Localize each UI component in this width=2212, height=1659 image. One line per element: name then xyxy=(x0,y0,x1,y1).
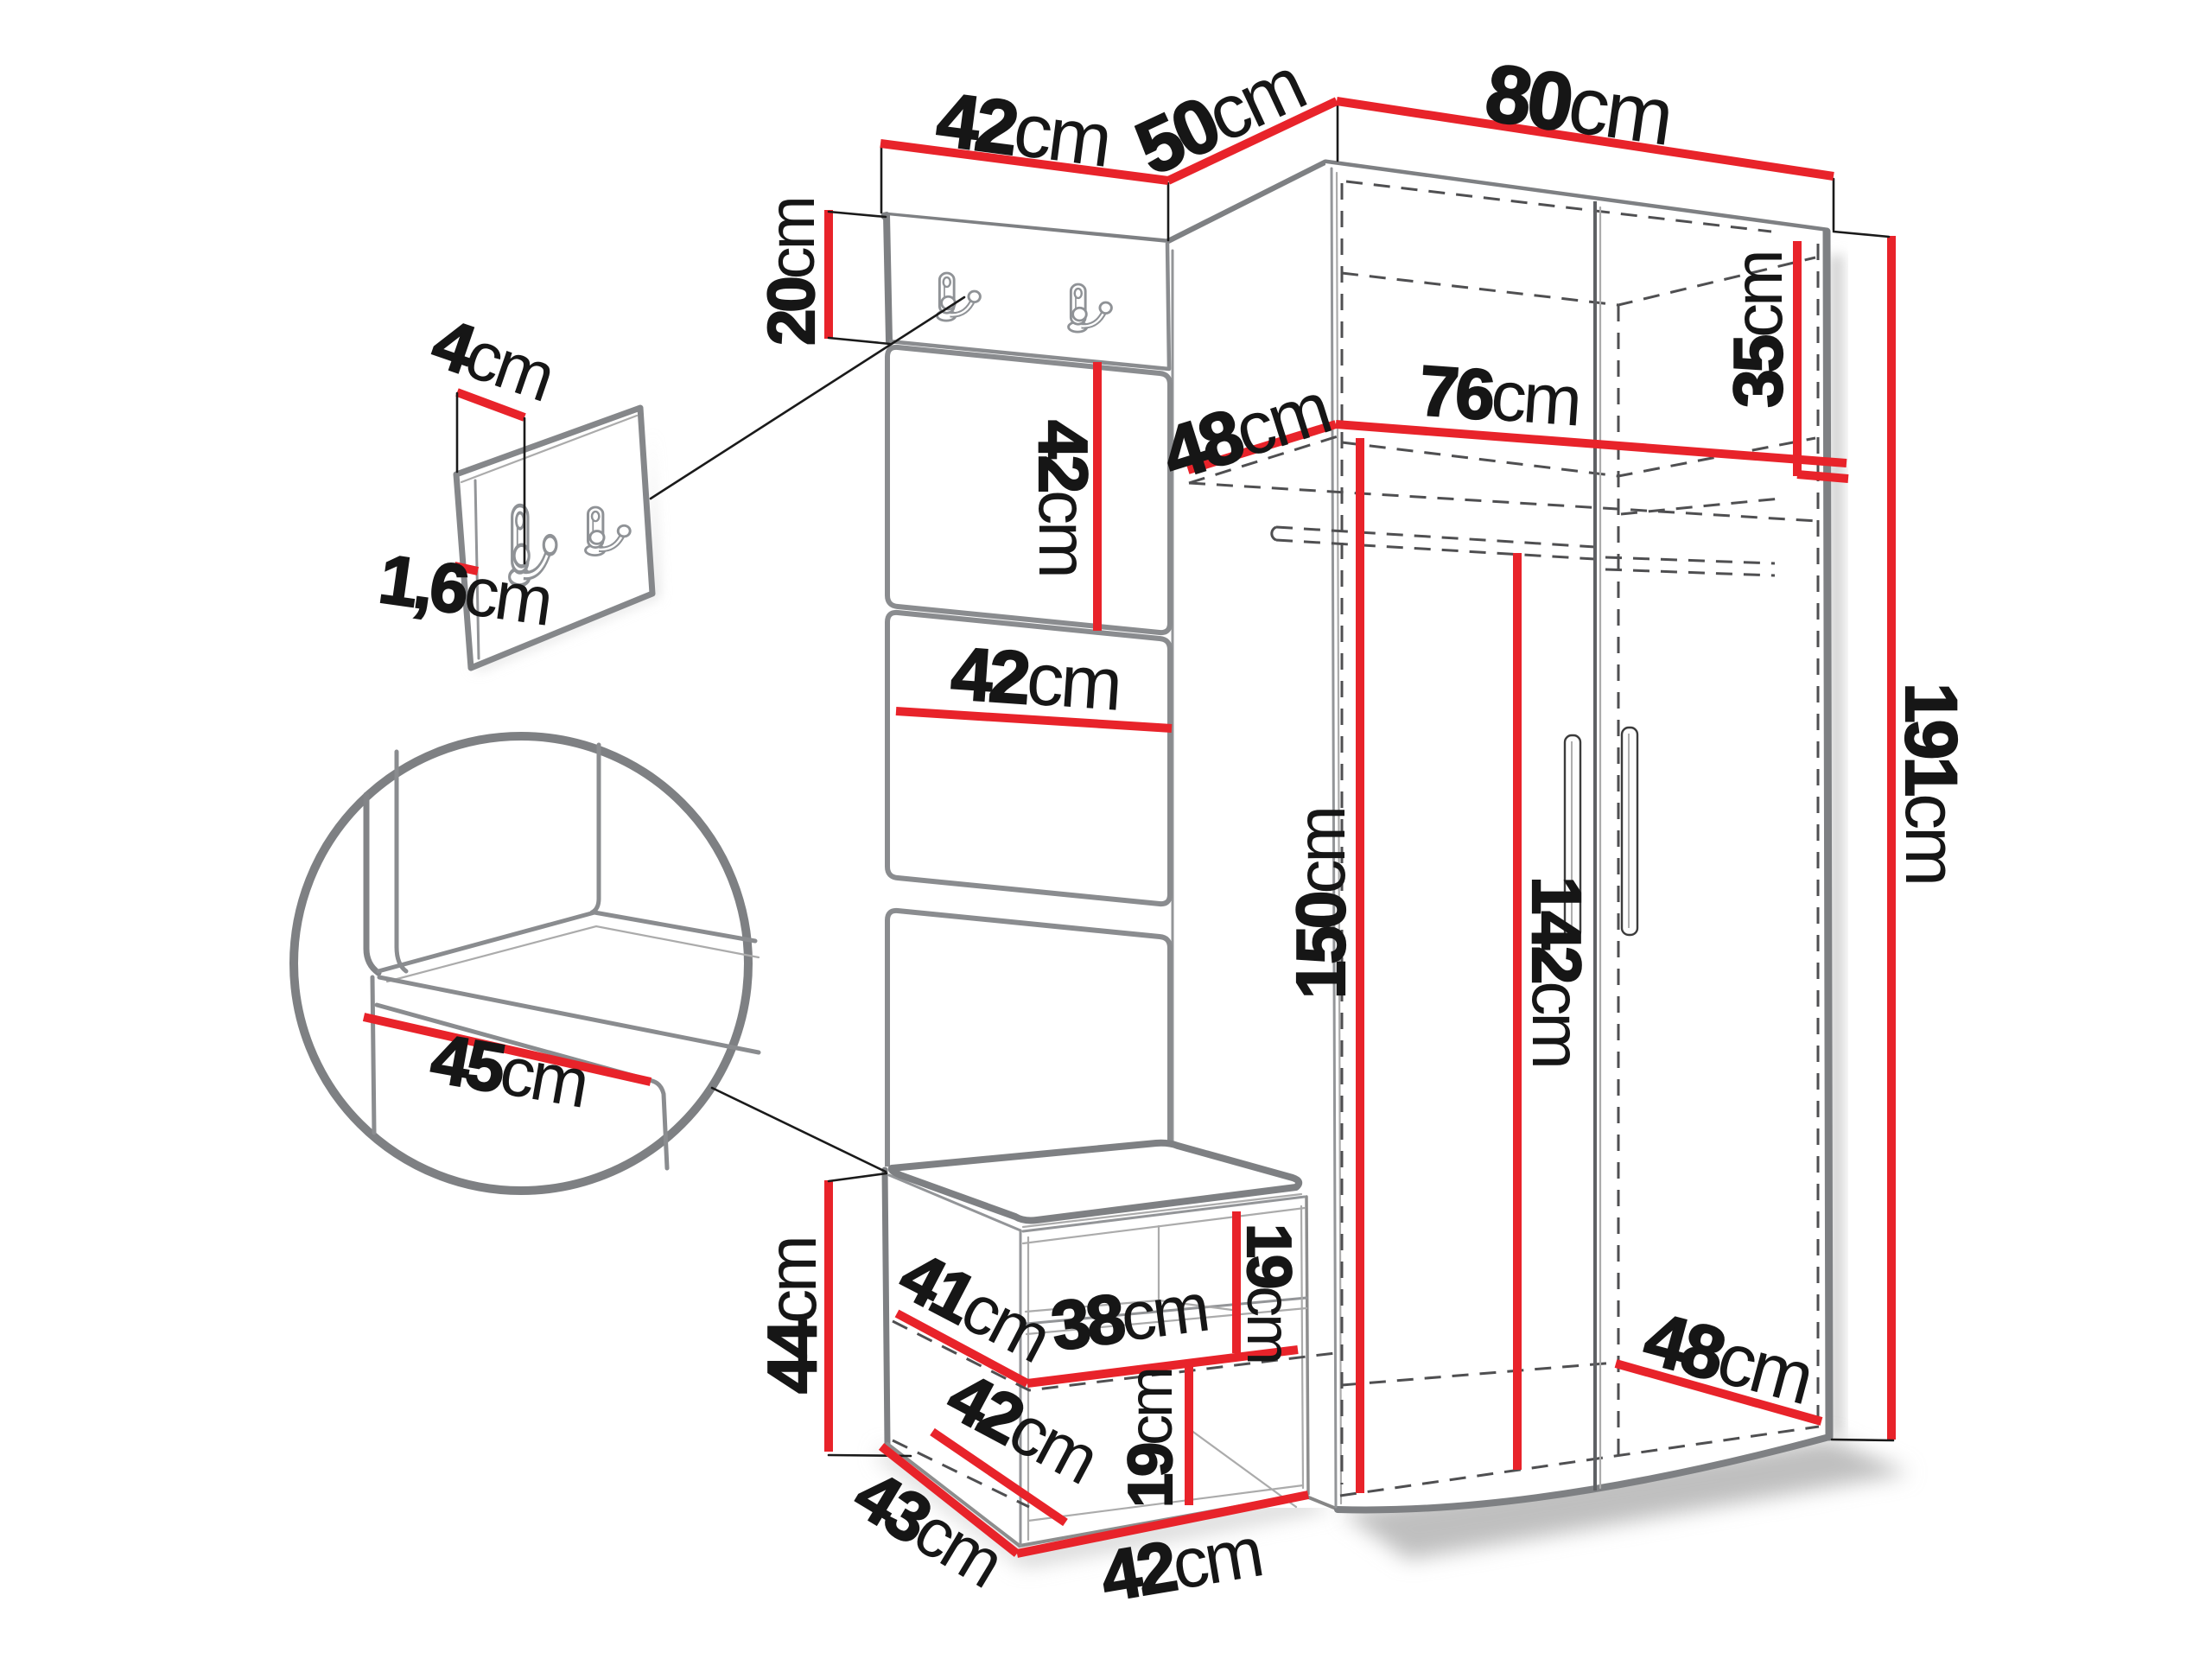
svg-text:19cm: 19cm xyxy=(1116,1370,1185,1508)
svg-text:150cm: 150cm xyxy=(1282,809,1359,999)
svg-text:19cm: 19cm xyxy=(1234,1224,1303,1362)
svg-text:142cm: 142cm xyxy=(1518,876,1595,1066)
svg-text:76cm: 76cm xyxy=(1417,352,1581,442)
svg-text:42cm: 42cm xyxy=(949,632,1122,726)
svg-text:191cm: 191cm xyxy=(1891,683,1972,883)
svg-text:4cm: 4cm xyxy=(423,303,563,415)
svg-text:44cm: 44cm xyxy=(753,1238,830,1394)
svg-text:35cm: 35cm xyxy=(1719,252,1796,408)
svg-text:20cm: 20cm xyxy=(755,199,829,346)
svg-text:42cm: 42cm xyxy=(1025,420,1102,575)
